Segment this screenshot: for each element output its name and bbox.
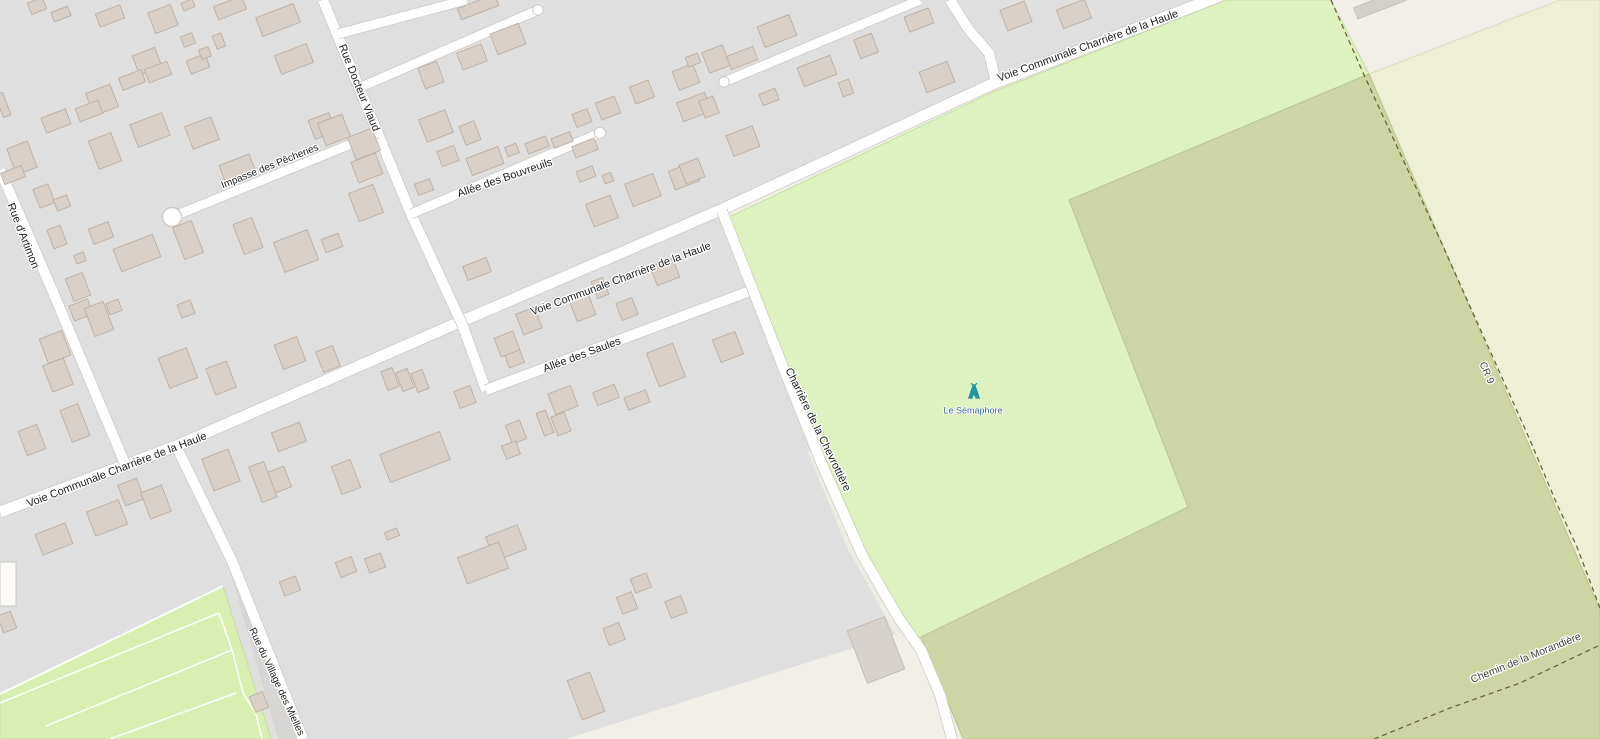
svg-text:Le Sémaphore: Le Sémaphore [943,406,1002,416]
